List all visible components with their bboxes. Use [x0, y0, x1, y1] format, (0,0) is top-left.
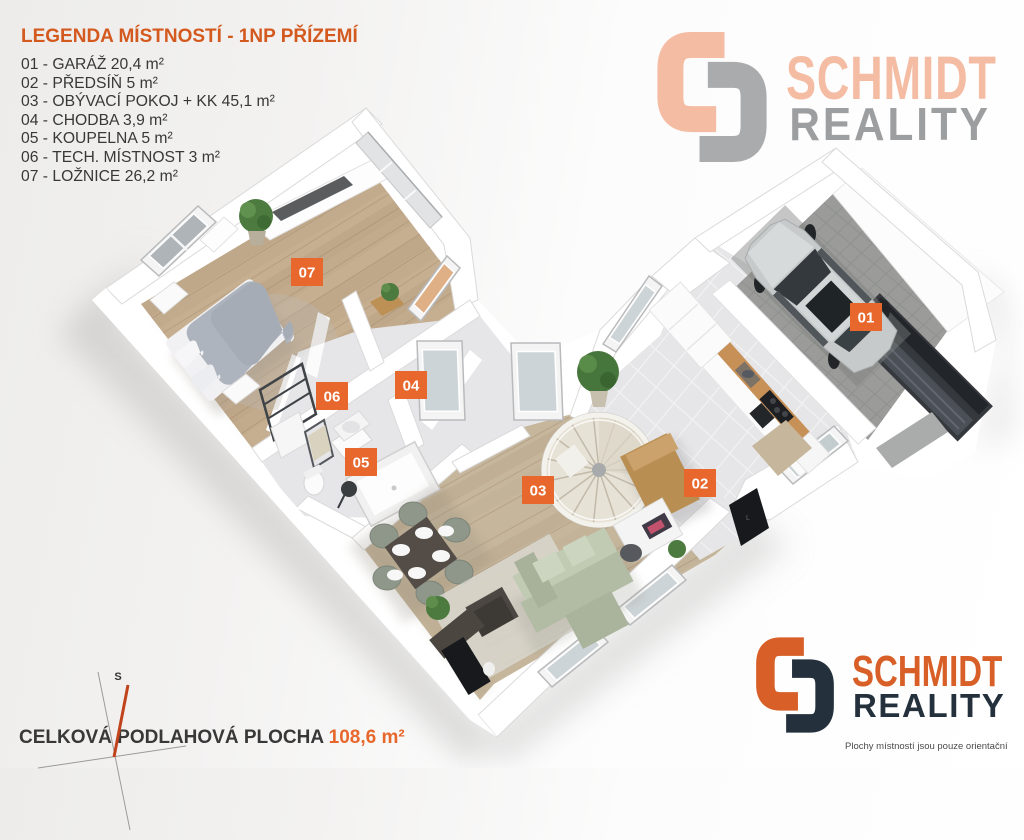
svg-text:01: 01	[858, 310, 875, 327]
svg-text:04: 04	[403, 378, 420, 395]
svg-text:Plochy místností jsou pouze or: Plochy místností jsou pouze orientační	[845, 741, 1008, 752]
svg-text:03: 03	[530, 483, 547, 500]
svg-text:REALITY: REALITY	[789, 99, 991, 150]
svg-text:02: 02	[692, 476, 709, 493]
svg-text:06: 06	[324, 389, 341, 406]
svg-text:S: S	[114, 671, 121, 683]
svg-text:L: L	[746, 515, 750, 522]
svg-text:05: 05	[353, 455, 370, 472]
svg-text:07: 07	[299, 265, 316, 282]
svg-text:REALITY: REALITY	[853, 687, 1005, 724]
